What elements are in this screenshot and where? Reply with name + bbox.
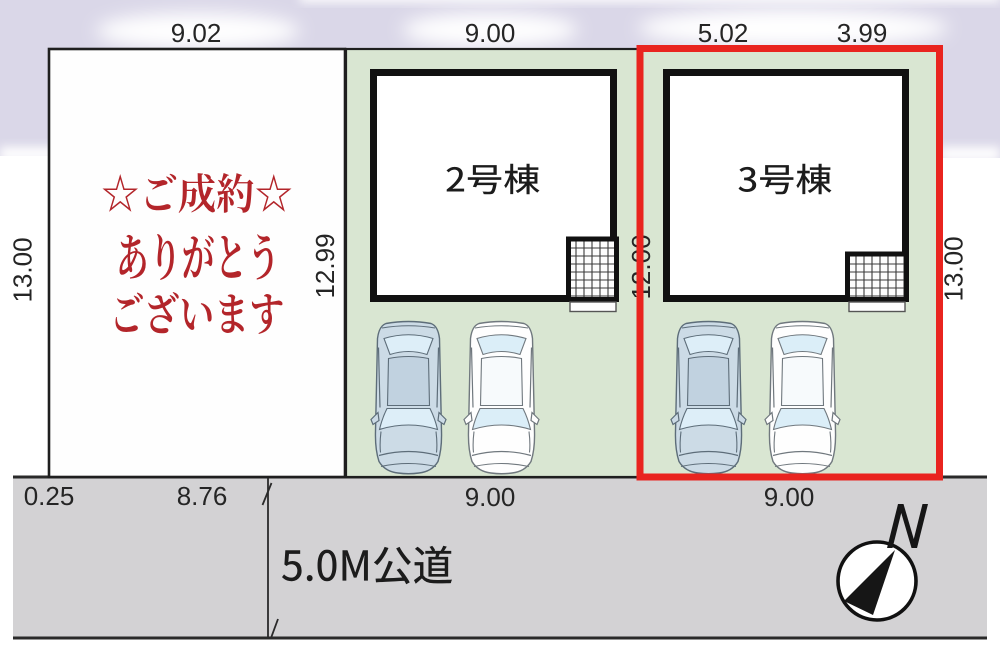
svg-text:13.00: 13.00 — [8, 237, 38, 302]
svg-text:12.99: 12.99 — [310, 233, 340, 298]
svg-text:9.00: 9.00 — [764, 482, 815, 512]
svg-text:0.25: 0.25 — [24, 481, 75, 511]
svg-text:9.00: 9.00 — [465, 18, 516, 48]
svg-text:13.00: 13.00 — [939, 236, 969, 301]
svg-text:8.76: 8.76 — [177, 481, 228, 511]
svg-text:3.99: 3.99 — [837, 18, 888, 48]
svg-text:9.00: 9.00 — [465, 482, 516, 512]
svg-text:9.02: 9.02 — [171, 18, 222, 48]
svg-text:5.02: 5.02 — [698, 18, 749, 48]
